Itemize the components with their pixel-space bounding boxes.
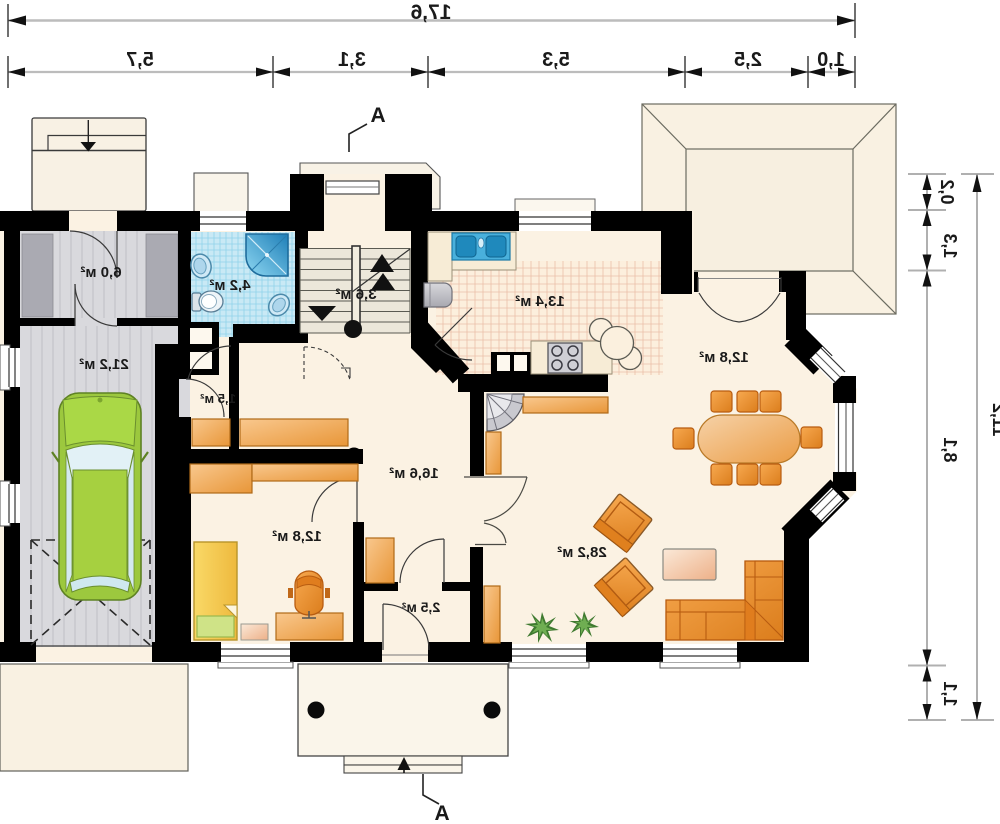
svg-text:16,6 м²: 16,6 м² (389, 465, 438, 482)
svg-text:3,1: 3,1 (338, 49, 366, 71)
svg-text:11,2: 11,2 (989, 403, 1000, 437)
svg-text:28,2 м²: 28,2 м² (557, 544, 606, 561)
svg-text:A: A (370, 104, 385, 127)
svg-text:1,5 м²: 1,5 м² (200, 391, 236, 406)
svg-text:13,4 м²: 13,4 м² (515, 293, 564, 310)
svg-text:0,2: 0,2 (937, 179, 957, 204)
svg-text:1,0: 1,0 (817, 49, 845, 71)
svg-text:21,2 м²: 21,2 м² (79, 356, 128, 373)
svg-text:6,0 м²: 6,0 м² (80, 264, 121, 281)
svg-text:12,8 м²: 12,8 м² (272, 528, 321, 545)
svg-text:A: A (434, 802, 449, 824)
svg-text:3,6 м²: 3,6 м² (335, 286, 376, 303)
svg-text:1,1: 1,1 (940, 681, 960, 706)
svg-text:2,5: 2,5 (734, 49, 762, 71)
svg-text:17,6: 17,6 (411, 1, 452, 24)
svg-text:4,2 м²: 4,2 м² (209, 277, 250, 294)
svg-text:1,3: 1,3 (940, 233, 960, 258)
svg-text:5,3: 5,3 (542, 49, 570, 71)
svg-text:2,5 м²: 2,5 м² (401, 599, 440, 615)
svg-text:8,1: 8,1 (940, 437, 960, 462)
svg-text:5,7: 5,7 (126, 49, 154, 71)
svg-text:12,8 м²: 12,8 м² (699, 349, 748, 366)
